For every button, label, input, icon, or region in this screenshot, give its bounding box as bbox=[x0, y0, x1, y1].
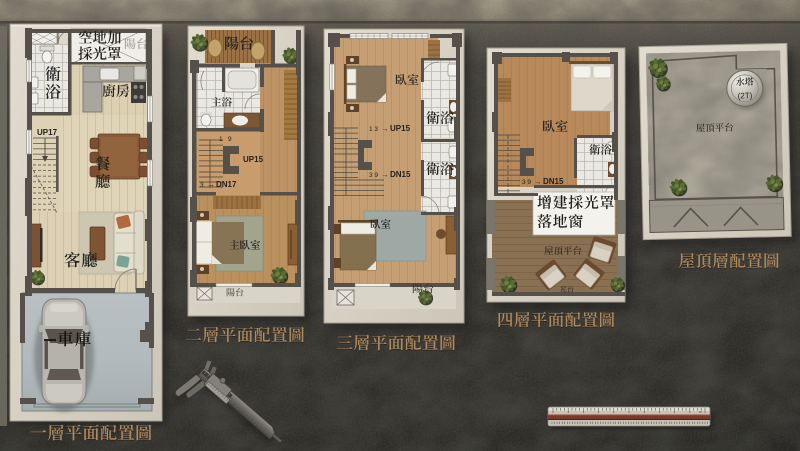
svg-text:→: → bbox=[207, 180, 215, 189]
svg-text:3: 3 bbox=[200, 182, 204, 189]
svg-text:DN15: DN15 bbox=[390, 170, 411, 179]
svg-text:3 9: 3 9 bbox=[369, 172, 378, 179]
svg-text:UP17: UP17 bbox=[37, 128, 58, 137]
svg-text:→: → bbox=[534, 177, 542, 186]
svg-text:1: 1 bbox=[219, 136, 223, 143]
svg-text:9: 9 bbox=[228, 136, 232, 143]
svg-text:DN17: DN17 bbox=[216, 180, 237, 189]
svg-text:UP15: UP15 bbox=[243, 155, 264, 164]
svg-text:→: → bbox=[381, 170, 389, 179]
svg-text:UP15: UP15 bbox=[390, 124, 411, 133]
svg-text:m: m bbox=[699, 410, 702, 414]
svg-text:DN15: DN15 bbox=[543, 177, 564, 186]
svg-text:(2T): (2T) bbox=[738, 91, 753, 100]
svg-text:3 9: 3 9 bbox=[522, 179, 531, 186]
svg-text:→: → bbox=[381, 124, 389, 133]
svg-text:1 3: 1 3 bbox=[369, 126, 378, 133]
